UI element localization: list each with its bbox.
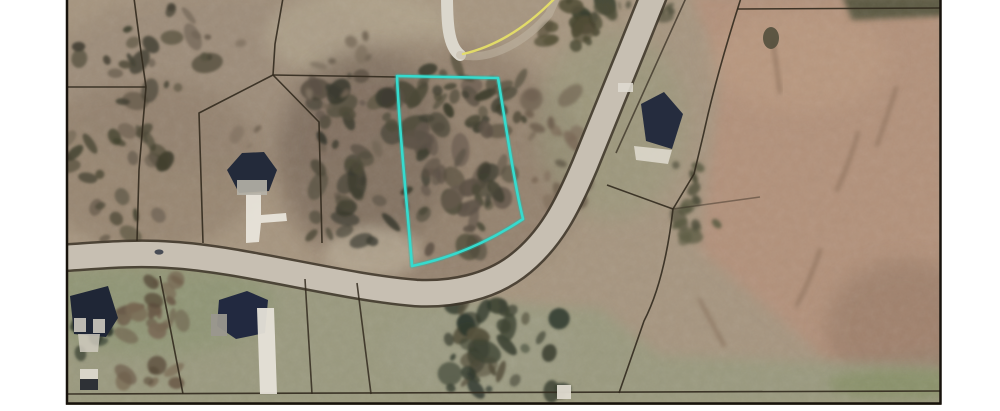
- map-canvas: [0, 0, 1000, 411]
- field-lone-tree: [763, 27, 779, 49]
- house4-wing: [211, 314, 227, 336]
- driveway-bottom-second: [257, 308, 277, 394]
- car-on-road: [155, 249, 164, 254]
- aerial-parcel-map: [0, 0, 1000, 411]
- house3-garage-b: [93, 319, 105, 333]
- driveway-bottomleft: [78, 334, 100, 352]
- outbuilding-white: [557, 385, 571, 399]
- shed-roof-dark: [80, 379, 98, 390]
- shed-roof-light: [80, 369, 98, 379]
- map-layers: [25, 0, 985, 410]
- house3-garage-a: [74, 318, 86, 332]
- lot-line-topright-horizontal: [737, 8, 942, 9]
- white-patch-right-house: [618, 83, 633, 92]
- house1-front: [237, 180, 267, 195]
